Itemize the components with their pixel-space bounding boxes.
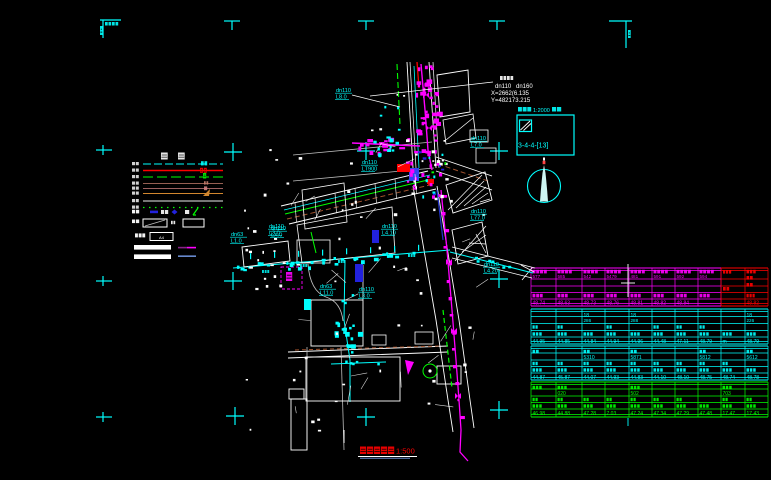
svg-text:542: 542 xyxy=(584,274,592,279)
svg-text:47.34: 47.34 xyxy=(654,411,667,417)
svg-text:48.76: 48.76 xyxy=(607,301,620,307)
svg-text:A4: A4 xyxy=(159,235,165,240)
svg-text:48.82: 48.82 xyxy=(747,301,760,307)
svg-text:m: m xyxy=(723,339,727,345)
svg-text:481: 481 xyxy=(631,274,639,279)
svg-text:47.48: 47.48 xyxy=(700,411,713,417)
svg-text:591: 591 xyxy=(654,274,662,279)
svg-text:44.48: 44.48 xyxy=(654,339,667,345)
svg-text:44.96: 44.96 xyxy=(631,339,644,345)
svg-text:48.63: 48.63 xyxy=(558,301,571,307)
svg-text:592: 592 xyxy=(677,274,685,279)
svg-text:585: 585 xyxy=(558,274,566,279)
svg-text:5310: 5310 xyxy=(584,355,595,361)
svg-text:502: 502 xyxy=(631,391,640,397)
svg-text:5479: 5479 xyxy=(607,274,618,279)
svg-text:44.07: 44.07 xyxy=(584,375,597,381)
svg-text:5612: 5612 xyxy=(747,355,758,361)
svg-text:48.82: 48.82 xyxy=(654,301,667,307)
svg-text:594: 594 xyxy=(700,274,708,279)
svg-text:44.93: 44.93 xyxy=(607,375,620,381)
svg-text:3-4-4-[13]: 3-4-4-[13] xyxy=(518,143,548,150)
svg-text:47.24: 47.24 xyxy=(631,411,644,417)
svg-text:5871: 5871 xyxy=(631,355,642,361)
svg-text:44.94: 44.94 xyxy=(607,339,620,345)
svg-text:1:500: 1:500 xyxy=(396,447,415,456)
svg-text:226: 226 xyxy=(747,318,755,323)
svg-text:48.78: 48.78 xyxy=(747,375,760,381)
svg-text:X=2662(6.135: X=2662(6.135 xyxy=(491,91,530,97)
svg-text:48.74: 48.74 xyxy=(533,301,546,307)
svg-text:48.73: 48.73 xyxy=(584,301,597,307)
svg-text:1:2000: 1:2000 xyxy=(533,108,550,114)
svg-text:5812: 5812 xyxy=(700,355,711,361)
svg-text:577: 577 xyxy=(533,274,541,279)
svg-text:46.98: 46.98 xyxy=(533,411,546,417)
svg-text:Y=482173.215: Y=482173.215 xyxy=(491,98,531,104)
svg-text:286: 286 xyxy=(584,318,592,323)
svg-text:44.10: 44.10 xyxy=(654,375,667,381)
svg-text:dn160: dn160 xyxy=(516,84,533,90)
svg-text:47.28: 47.28 xyxy=(584,411,597,417)
svg-text:7.03: 7.03 xyxy=(607,411,617,417)
svg-text:48.79: 48.79 xyxy=(747,339,760,345)
svg-text:44.87: 44.87 xyxy=(533,375,546,381)
svg-text:288: 288 xyxy=(631,318,639,323)
svg-text:44.88: 44.88 xyxy=(558,411,571,417)
svg-text:703: 703 xyxy=(723,391,732,397)
svg-text:44.83: 44.83 xyxy=(631,375,644,381)
svg-text:44.85: 44.85 xyxy=(558,339,571,345)
svg-text:47.11: 47.11 xyxy=(677,339,689,345)
svg-text:45.87: 45.87 xyxy=(558,375,571,381)
svg-text:48.10: 48.10 xyxy=(677,375,690,381)
svg-text:020: 020 xyxy=(558,391,567,397)
svg-text:17.43: 17.43 xyxy=(747,411,760,417)
svg-text:48.75: 48.75 xyxy=(700,375,713,381)
svg-text:44.84: 44.84 xyxy=(584,339,597,345)
svg-text:48.81: 48.81 xyxy=(631,301,644,307)
svg-text:dn110: dn110 xyxy=(495,84,512,90)
svg-text:47.29: 47.29 xyxy=(677,411,690,417)
svg-text:48.79: 48.79 xyxy=(700,339,713,345)
svg-text:44.95: 44.95 xyxy=(533,339,546,345)
svg-text:17.47: 17.47 xyxy=(723,411,736,417)
svg-text:48.84: 48.84 xyxy=(677,301,690,307)
svg-text:48.74: 48.74 xyxy=(723,375,736,381)
